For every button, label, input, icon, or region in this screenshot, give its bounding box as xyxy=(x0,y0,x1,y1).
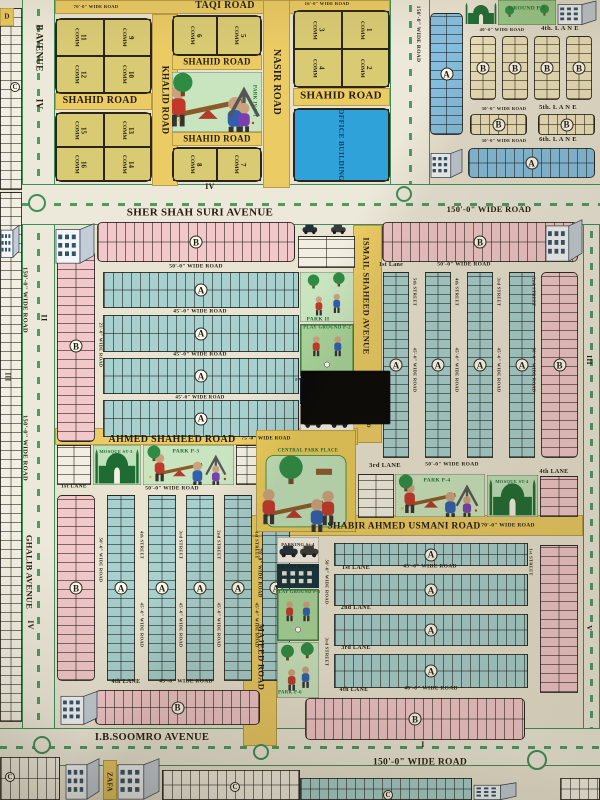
block-letter-badge: A xyxy=(425,624,438,637)
block-letter-badge: B xyxy=(492,118,505,131)
commercial-plot: COMM14 xyxy=(104,147,152,181)
commercial-plot: COMM12 xyxy=(56,56,104,93)
label-office-building: OFFICE BUILDING xyxy=(337,109,345,182)
plot-block-B: B xyxy=(57,250,95,442)
commercial-plot: COMM5 xyxy=(217,16,261,55)
playground-illustration xyxy=(277,589,319,641)
commercial-plot-label: COMM xyxy=(359,59,365,78)
plot-block-A: A xyxy=(224,495,252,681)
commercial-block: COMM3COMM1COMM4COMM2 xyxy=(293,10,390,88)
label-4th-l-a-n-e: 4th. L A N E xyxy=(541,26,579,33)
label-shahid-road: SHAHID ROAD xyxy=(300,91,382,102)
plot-block-B: B xyxy=(534,36,560,100)
commercial-plot-label: COMM xyxy=(73,155,79,174)
label-16-0-wide-road: 16'-0" WIDE ROAD xyxy=(305,2,350,7)
block-letter-badge: B xyxy=(190,236,203,249)
plot-block xyxy=(540,545,578,693)
building-icon xyxy=(430,148,463,178)
plot-block-A: A xyxy=(467,272,493,458)
block-letter-badge: A xyxy=(425,548,438,561)
label-50-0-wide-road: 50'-0" WIDE ROAD xyxy=(98,538,103,583)
building-icon xyxy=(65,757,100,800)
commercial-plot: COMM10 xyxy=(104,56,152,93)
central-park-illustration xyxy=(256,430,356,532)
commercial-plot: COMM8 xyxy=(173,148,217,181)
plot-block-B: B xyxy=(95,690,260,725)
label-2nd-street: 2nd STREET xyxy=(216,530,221,559)
label-75-0-wide-road: 75'-0" WIDE ROAD xyxy=(241,437,290,442)
commercial-plot-label: COMM xyxy=(232,155,238,174)
commercial-plot: COMM2 xyxy=(342,49,390,87)
label-i: I xyxy=(421,741,424,749)
commercial-plot-label: 13 xyxy=(127,127,134,134)
plot-block xyxy=(540,476,578,517)
plot-block-A: A xyxy=(107,495,135,681)
block-letter-badge: B xyxy=(573,62,586,75)
block-letter-badge: B xyxy=(553,359,566,372)
park-illustration xyxy=(277,642,319,698)
building-icon xyxy=(545,218,583,262)
label-45-0-wide-road: 45'-0" WIDE ROAD xyxy=(403,564,457,570)
plot-block-B: B xyxy=(305,698,525,740)
block-letter-badge: A xyxy=(425,665,438,678)
car-icon xyxy=(298,222,355,235)
block-letter-badge: A xyxy=(390,359,403,372)
plot-block-B: B xyxy=(566,36,592,100)
block-letter-badge: A xyxy=(195,327,208,340)
label-2nd-street: 2nd STREET xyxy=(531,277,536,306)
plot-block-B: B xyxy=(541,272,578,458)
label-45-0-wide-road: 45'-0" WIDE ROAD xyxy=(173,352,227,358)
commercial-block: COMM11COMM9COMM12COMM10 xyxy=(55,18,152,94)
label-3rd-street: 3rd STREET xyxy=(496,278,501,307)
label-3rd-lane: 3rd LANE xyxy=(369,463,401,470)
label-70-0-wide-road: 70'-0" WIDE ROAD xyxy=(481,523,535,529)
commercial-plot-label: 9 xyxy=(127,36,134,40)
plot-block-A: A xyxy=(383,272,409,458)
label-falcon-hgt-st-4: FALCON HGT ST-4 xyxy=(278,565,318,569)
commercial-plot: COMM3 xyxy=(294,11,342,49)
commercial-plot: COMM6 xyxy=(173,16,217,55)
label-30-0-wide-road: 30'-0" WIDE ROAD xyxy=(482,139,527,144)
block-letter-badge: B xyxy=(409,713,422,726)
block-letter-badge: A xyxy=(432,359,445,372)
label-1st-street: 1st STREET xyxy=(528,548,533,575)
park-illustration xyxy=(300,272,354,322)
label-zafa: ZAFA xyxy=(106,772,113,792)
label-70-0-wide-road: 70'-0" WIDE ROAD xyxy=(74,5,119,10)
plot-block-A: A xyxy=(103,315,299,352)
block-letter-badge: B xyxy=(541,62,554,75)
label-parking-st-4: PARKING St-4 xyxy=(281,543,314,548)
commercial-plot-label: 2 xyxy=(365,66,372,70)
commercial-plot: COMM11 xyxy=(56,19,104,56)
label-ground-p-1: GROUND P-1 xyxy=(509,6,546,12)
building-icon xyxy=(117,757,160,800)
label-nasir-road: NASIR ROAD xyxy=(271,49,281,115)
label-play-ground-p-5: PLAY GROUND P-5 xyxy=(276,590,321,595)
label-45-0-wide-road: 45'-0" WIDE ROAD xyxy=(139,603,144,648)
label-150-0-wide-road: 150'-0" WIDE ROAD xyxy=(414,6,420,63)
label-50-0-wide-road: 50'-0" WIDE ROAD xyxy=(324,560,329,605)
commercial-plot-label: 14 xyxy=(127,161,134,168)
building-icon xyxy=(55,222,95,264)
commercial-block: COMM15COMM13COMM16COMM14 xyxy=(55,112,152,182)
label-4th-lane: 4th LANE xyxy=(540,469,569,475)
label-shahid-road: SHAHID ROAD xyxy=(183,135,251,144)
label-1st-lane: 1st LANE xyxy=(342,565,370,571)
map-canvas: BBAAAABAAAABAABBBBBBBAAAAABAAAABCOMM11CO… xyxy=(0,0,600,800)
plot-block-A: A xyxy=(186,495,214,681)
label-5th-l-a-n-e: 5th. L A N E xyxy=(539,105,577,112)
commercial-plot-label: 15 xyxy=(80,127,87,134)
commercial-plot-label: 3 xyxy=(318,28,325,32)
label-iii: III xyxy=(4,372,11,381)
label-45-0-wide-road: 45'-0" WIDE ROAD xyxy=(254,603,259,648)
label-b-avenue: B AVENUE xyxy=(35,25,44,72)
label-4th-lane: 4th LANE xyxy=(112,679,141,685)
label-park-p-6: PARK P-6 xyxy=(278,692,302,697)
plot-block xyxy=(358,474,394,518)
park-illustration xyxy=(172,72,262,132)
label-50-0-wide-road: 50'-0" WIDE ROAD xyxy=(145,486,199,492)
plot-block-B: B xyxy=(57,495,95,681)
plot-block-A: A xyxy=(148,495,176,681)
block-letter-badge: A xyxy=(474,359,487,372)
label-khalid-road: KHALID ROAD xyxy=(161,66,170,135)
label-45-0-wide-road: 45'-0" WIDE ROAD xyxy=(216,603,221,648)
commercial-plot: COMM1 xyxy=(342,11,390,49)
commercial-plot-label: COMM xyxy=(311,21,317,40)
plot-block xyxy=(0,8,22,190)
plot-block-A: A xyxy=(425,272,451,458)
building-icon xyxy=(557,0,597,25)
block-letter-badge: A xyxy=(232,582,245,595)
label-1st-lane: 1st Lane xyxy=(379,262,403,268)
label-150-0-wide-road: 150'-0" WIDE ROAD xyxy=(373,758,467,768)
label-40-0-wide-road: 40'-0" WIDE ROAD xyxy=(480,28,525,33)
label-30-0-wide-road: 30'-0" WIDE ROAD xyxy=(482,107,527,112)
block-letter-badge: A xyxy=(195,284,208,297)
label-1st-lane: 1st LANE xyxy=(61,484,87,490)
block-letter-badge: B xyxy=(474,236,487,249)
avenue-road xyxy=(390,0,430,188)
commercial-plot-label: 7 xyxy=(239,163,246,167)
commercial-plot-label: 5 xyxy=(239,34,246,38)
label-150-0-wide-road: 150'-0" WIDE ROAD xyxy=(21,415,28,481)
label-ismail-shaheed-avenue: ISMAIL SHAHEED AVENUE xyxy=(362,237,371,354)
plot-block-B: B xyxy=(97,222,295,262)
plot-block xyxy=(298,236,355,268)
label-mosque-st-3: MOSQUE ST-3 xyxy=(99,450,132,455)
building-icon xyxy=(0,224,20,258)
label-3rd-lane: 3rd LANE xyxy=(341,645,371,651)
label-iii: III xyxy=(585,355,593,365)
commercial-plot-label: COMM xyxy=(121,65,127,84)
commercial-plot-label: COMM xyxy=(121,121,127,140)
roundabout-icon xyxy=(527,750,547,770)
label-shahid-road: SHAHID ROAD xyxy=(63,96,138,106)
commercial-plot-label: COMM xyxy=(73,65,79,84)
label-150-0-wide-road: 150'-0" WIDE ROAD xyxy=(447,205,532,214)
commercial-plot-label: 4 xyxy=(318,66,325,70)
plot-block-A: A xyxy=(334,654,528,688)
block-letter-badge: B xyxy=(70,340,83,353)
avenue-road xyxy=(583,184,600,766)
label-2nd-lane: 2nd LANE xyxy=(341,605,371,611)
plot-letter-badge: C xyxy=(230,782,240,792)
block-letter-badge: B xyxy=(509,62,522,75)
commercial-plot-label: COMM xyxy=(232,26,238,45)
label-sher-shah-suri-avenue: SHER SHAH SURI AVENUE xyxy=(127,208,273,219)
label-d: D xyxy=(4,14,9,21)
label-park-iv-p-1: PARK IV P-1 xyxy=(252,85,257,117)
building-icon xyxy=(60,690,98,725)
label-iv: IV xyxy=(205,183,215,191)
label-23-0-wide-road: 23'-0" WIDE ROAD xyxy=(98,323,103,368)
label-50-0-wide-road: 50'-0" WIDE ROAD xyxy=(531,348,536,393)
label-40-0-wide-road: 40'-0" WIDE ROAD xyxy=(404,686,458,692)
label-play-ground-p-2: PLAY GROUND P-2 xyxy=(303,327,351,332)
commercial-plot-label: COMM xyxy=(73,121,79,140)
roundabout-icon xyxy=(28,194,46,212)
plot-block-A: A xyxy=(468,148,595,178)
commercial-plot-label: 10 xyxy=(127,71,134,78)
commercial-plot-label: COMM xyxy=(188,26,194,45)
commercial-block: COMM8COMM7 xyxy=(172,147,262,182)
commercial-plot-label: COMM xyxy=(121,155,127,174)
redaction-overlay xyxy=(301,371,390,424)
commercial-plot-label: COMM xyxy=(121,28,127,47)
commercial-plot-label: COMM xyxy=(359,21,365,40)
commercial-plot-label: 12 xyxy=(80,71,87,78)
commercial-plot-label: 6 xyxy=(195,34,202,38)
block-letter-badge: B xyxy=(477,62,490,75)
plot-block-A: A xyxy=(103,358,299,394)
block-letter-badge: B xyxy=(171,701,184,714)
commercial-plot-label: 11 xyxy=(80,34,87,41)
commercial-plot: COMM4 xyxy=(294,49,342,87)
commercial-plot-label: 16 xyxy=(80,161,87,168)
label-45-0-wide-road: 45'-0" WIDE ROAD xyxy=(412,348,417,393)
plot-block-A: A xyxy=(103,272,299,308)
block-letter-badge: A xyxy=(425,584,438,597)
plot-letter-badge: C xyxy=(10,82,20,92)
plot-block xyxy=(0,192,22,722)
label-iv: IV xyxy=(35,99,44,110)
commercial-plot: COMM7 xyxy=(217,148,261,181)
roundabout-icon xyxy=(33,736,51,754)
ground-illustration xyxy=(498,0,556,25)
commercial-plot: COMM13 xyxy=(104,113,152,147)
mosque-icon xyxy=(464,0,498,25)
label-park-p-3: PARK P-3 xyxy=(173,449,200,455)
label-3rd-street: 3rd STREET xyxy=(324,638,329,667)
label-50-0-wide-road: 50'-0" WIDE ROAD xyxy=(425,462,479,468)
playground-illustration xyxy=(300,324,354,376)
plot-block xyxy=(236,445,258,485)
label-6th-l-a-n-e: 6th. L A N E xyxy=(539,137,577,144)
block-letter-badge: A xyxy=(195,370,208,383)
commercial-plot: COMM15 xyxy=(56,113,104,147)
roundabout-icon xyxy=(396,186,412,202)
plot-block-B: B xyxy=(470,36,496,100)
label-4th-street: 4th STREET xyxy=(454,278,459,306)
commercial-plot-label: COMM xyxy=(311,59,317,78)
label-v: V xyxy=(585,625,593,631)
block-letter-badge: B xyxy=(70,582,83,595)
plot-block-B: B xyxy=(538,114,595,135)
label-45-0-wide-road: 45'-0" WIDE ROAD xyxy=(454,348,459,393)
plot-block-A: A xyxy=(430,13,463,135)
plot-letter-badge: C xyxy=(5,772,15,782)
label-shabir-ahmed-usmani-road: SHABIR AHMED USMANI ROAD xyxy=(327,522,480,532)
label-mosque-st-4: MOSQUE ST-4 xyxy=(495,480,528,485)
avenue-road xyxy=(22,0,55,800)
plot-block-B: B xyxy=(470,114,527,135)
block-letter-badge: A xyxy=(516,359,529,372)
plot-block-B: B xyxy=(502,36,528,100)
label-iv: IV xyxy=(26,620,34,630)
label-ghalib-avenue: GHALIB AVENUE xyxy=(25,535,34,609)
label-ahmed-shaheed-road: AHMED SHAHEED ROAD xyxy=(108,435,235,445)
plot-block xyxy=(560,778,600,800)
block-letter-badge: A xyxy=(195,412,208,425)
commercial-plot: COMM16 xyxy=(56,147,104,181)
commercial-plot-label: 1 xyxy=(365,28,372,32)
roundabout-icon xyxy=(253,744,269,760)
label-45-0-wide-road: 45'-0" WIDE ROAD xyxy=(496,348,501,393)
plot-block-A: A xyxy=(334,574,528,606)
label-50-0-wide-road: 50'-0" WIDE ROAD xyxy=(169,264,223,270)
label-45-0-wide-road: 45'-0" WIDE ROAD xyxy=(173,309,227,315)
label-park-p-4: PARK P-4 xyxy=(424,478,451,484)
commercial-plot: COMM9 xyxy=(104,19,152,56)
plot-letter-badge: C xyxy=(383,790,393,800)
label-150-0-wide-road: 150'-0" WIDE ROAD xyxy=(21,267,28,333)
label-shahid-road: SHAHID ROAD xyxy=(183,58,251,67)
label-4th-street: 4th STREET xyxy=(139,531,144,559)
label-45-0-wide-road: 45'-0" WIDE ROAD xyxy=(175,396,224,401)
building-icon xyxy=(473,782,517,800)
commercial-block: COMM6COMM5 xyxy=(172,15,262,56)
commercial-plot-label: COMM xyxy=(73,28,79,47)
commercial-plot-label: 8 xyxy=(195,163,202,167)
label-45-0-wide-road: 45'-0" WIDE ROAD xyxy=(178,603,183,648)
label-50-0-wide-road: 50'-0" WIDE ROAD xyxy=(437,262,491,268)
block-letter-badge: B xyxy=(560,118,573,131)
label-5th-street: 5th STREET xyxy=(412,278,417,306)
plot-block xyxy=(57,445,91,485)
label-i-b-soomro-avenue: I.B.SOOMRO AVENUE xyxy=(95,733,209,744)
label-ii: II xyxy=(40,314,49,321)
block-letter-badge: A xyxy=(115,582,128,595)
label-3rd-street: 3rd STREET xyxy=(178,531,183,560)
block-letter-badge: A xyxy=(156,582,169,595)
commercial-plot-label: COMM xyxy=(188,155,194,174)
label-4th-lane: 4th LANE xyxy=(340,687,369,693)
plot-block-A: A xyxy=(334,614,528,646)
block-letter-badge: A xyxy=(525,157,538,170)
label-1st-street: 1st STREET xyxy=(254,531,259,558)
block-letter-badge: A xyxy=(194,582,207,595)
block-letter-badge: A xyxy=(440,68,453,81)
label-45-0-wide-road: 45'-0" WIDE ROAD xyxy=(159,679,213,685)
label-park-ii: PARK II xyxy=(307,317,330,323)
label-central-park-place: CENTRAL PARK PLACE xyxy=(278,450,338,455)
label-taqi-road: TAQI ROAD xyxy=(195,1,254,11)
